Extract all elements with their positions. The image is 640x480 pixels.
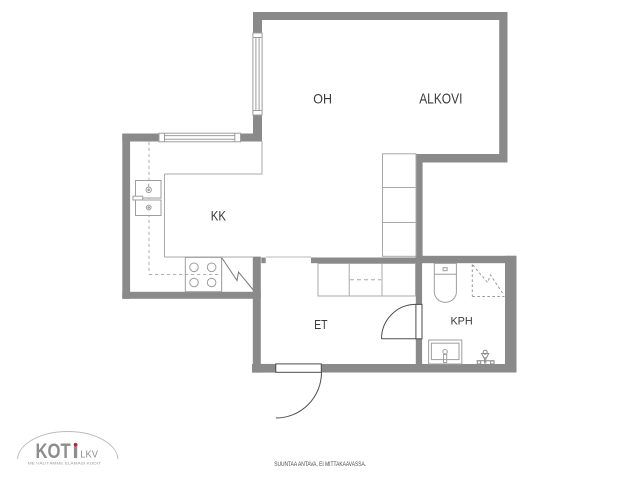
svg-text:OH: OH: [313, 90, 332, 106]
svg-text:ME VÄLITÄMME ELÄMÄSI KODIT: ME VÄLITÄMME ELÄMÄSI KODIT: [28, 462, 102, 466]
svg-text:LKV: LKV: [80, 449, 98, 460]
svg-text:ET: ET: [314, 317, 327, 332]
svg-text:KPH: KPH: [450, 315, 472, 327]
svg-text:ALKOVI: ALKOVI: [419, 91, 462, 107]
svg-text:KOT: KOT: [36, 439, 71, 463]
svg-text:KK: KK: [211, 208, 226, 223]
svg-text:SUUNTAA ANTAVA, EI MITTAKAAVAS: SUUNTAA ANTAVA, EI MITTAKAAVASSA.: [274, 461, 366, 468]
